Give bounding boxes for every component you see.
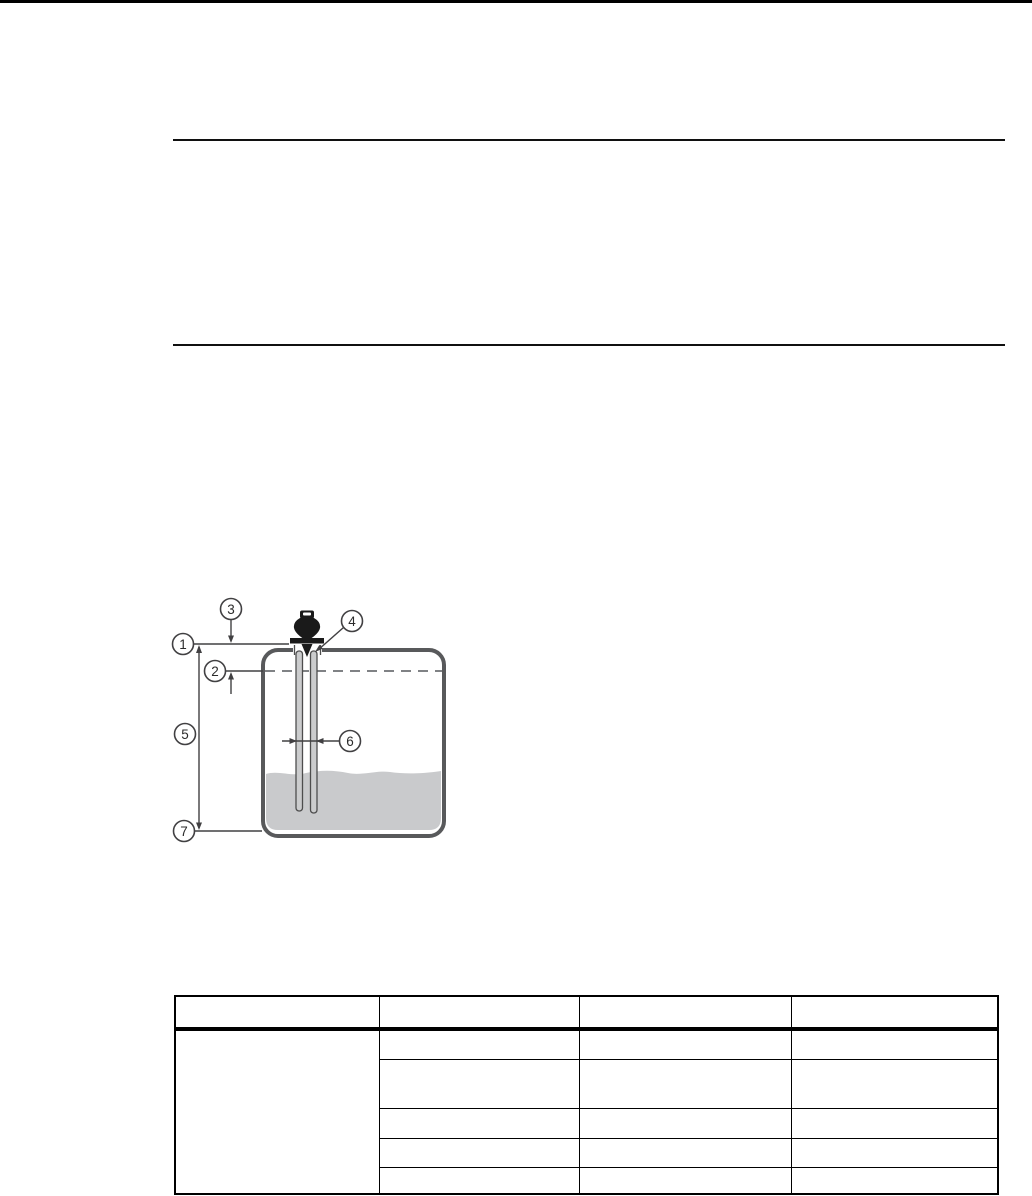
table-cell (379, 1108, 579, 1138)
callout-6: 6 (340, 731, 361, 752)
table-cell (379, 1059, 579, 1108)
spec-table-header-row (175, 996, 998, 1029)
instrument-cap-slot (303, 613, 311, 616)
dim-3-arrow-down (228, 636, 234, 644)
table-cell (791, 1108, 998, 1138)
table-cell (791, 1029, 998, 1059)
horizontal-rule-2 (173, 344, 1005, 346)
svg-text:3: 3 (227, 602, 235, 617)
merged-cell (175, 1029, 379, 1194)
callout-1: 1 (173, 634, 194, 655)
spec-table (174, 995, 999, 1195)
probe-rod-right (311, 651, 318, 813)
svg-text:1: 1 (179, 637, 187, 652)
table-cell (579, 1059, 791, 1108)
header-cell-2 (379, 996, 579, 1029)
page-top-divider (0, 0, 1032, 3)
header-cell-3 (579, 996, 791, 1029)
horizontal-rule-1 (173, 139, 1005, 141)
header-cell-1 (175, 996, 379, 1029)
svg-text:5: 5 (181, 727, 189, 742)
svg-text:6: 6 (346, 734, 354, 749)
table-cell (579, 1029, 791, 1059)
svg-text:4: 4 (348, 614, 356, 629)
liquid-fill (266, 771, 441, 830)
table-cell (379, 1138, 579, 1167)
table-cell (579, 1108, 791, 1138)
callout-5: 5 (175, 724, 196, 745)
table-cell (579, 1138, 791, 1167)
callout-3: 3 (221, 599, 242, 620)
header-cell-4 (791, 996, 998, 1029)
table-cell (791, 1059, 998, 1108)
callout-7: 7 (174, 821, 195, 842)
callout-2: 2 (205, 661, 226, 682)
svg-text:7: 7 (180, 824, 188, 839)
tank-level-diagram: 1 2 3 4 5 6 7 (155, 585, 475, 850)
table-row (175, 1029, 998, 1059)
instrument-flange (290, 638, 324, 644)
callout-4: 4 (342, 611, 363, 632)
instrument-head (294, 618, 320, 639)
dim-5-arrow-up (196, 645, 202, 653)
table-cell (791, 1167, 998, 1194)
table-cell (379, 1167, 579, 1194)
dim-5-arrow-down (196, 823, 202, 831)
table-cell (579, 1167, 791, 1194)
probe-rod-left (296, 651, 303, 811)
table-cell (791, 1138, 998, 1167)
table-cell (379, 1029, 579, 1059)
document-page: 1 2 3 4 5 6 7 (0, 0, 1032, 1196)
svg-text:2: 2 (211, 664, 219, 679)
